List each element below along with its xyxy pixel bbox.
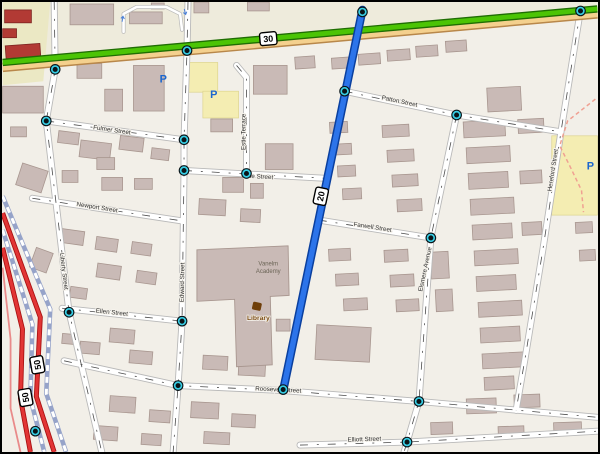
building [466, 146, 510, 164]
building [105, 89, 123, 111]
building [231, 414, 255, 428]
building [149, 410, 171, 423]
map-viewport[interactable]: Fulmer StreetErie StreetEstie TerracePat… [0, 0, 600, 454]
route-node[interactable] [50, 64, 61, 75]
building [343, 298, 367, 311]
building [79, 341, 100, 355]
route-node[interactable] [179, 165, 190, 176]
building [97, 158, 115, 170]
route-node[interactable] [575, 6, 586, 17]
route-node[interactable] [451, 110, 462, 121]
building [136, 270, 157, 285]
building [96, 263, 121, 280]
building-red [3, 29, 17, 38]
building [358, 53, 381, 65]
building [478, 300, 522, 317]
building [194, 2, 209, 13]
parking-lot [203, 91, 239, 118]
building [129, 350, 153, 365]
building [468, 171, 508, 189]
route-node[interactable] [278, 384, 289, 395]
route-node[interactable] [357, 7, 368, 18]
route-shield-20: 20 [313, 187, 329, 206]
building [435, 289, 453, 312]
route-shield-30: 30 [259, 32, 277, 46]
building [102, 177, 123, 190]
route-node[interactable] [30, 426, 41, 437]
route-node[interactable] [414, 396, 425, 407]
route-node[interactable] [402, 437, 413, 448]
route-node[interactable] [425, 233, 436, 244]
building [191, 402, 220, 419]
building [240, 209, 260, 223]
building [476, 275, 516, 292]
building [276, 319, 290, 331]
building [203, 355, 228, 370]
building [416, 45, 439, 57]
map-canvas[interactable]: Fulmer StreetErie StreetEstie TerracePat… [2, 2, 598, 452]
building [62, 171, 78, 183]
parking-icon: P [160, 73, 167, 85]
building [474, 249, 518, 266]
shield-number: 50 [20, 392, 32, 404]
building [134, 178, 152, 189]
building [199, 199, 227, 216]
building [392, 174, 418, 187]
building [335, 273, 358, 286]
shield-number: 50 [32, 359, 44, 371]
parking-icon: P [210, 89, 217, 101]
building [390, 274, 414, 287]
route-node[interactable] [177, 316, 188, 327]
building [387, 149, 414, 162]
building [77, 63, 102, 78]
building [204, 432, 230, 445]
building [337, 165, 355, 177]
building [387, 49, 411, 61]
building [342, 188, 361, 200]
building [480, 326, 520, 343]
building [211, 119, 233, 132]
parking-icon: P [587, 161, 594, 173]
building [484, 376, 514, 390]
building [253, 65, 287, 94]
building [131, 242, 152, 257]
building [295, 56, 316, 69]
building [11, 127, 27, 137]
school-label: VanelmAcademy [256, 262, 281, 275]
building [109, 328, 135, 344]
building-red [5, 10, 32, 23]
building [58, 131, 80, 145]
building [520, 170, 542, 184]
building [328, 248, 350, 261]
building [470, 197, 514, 215]
street-label: Estie Terrace [240, 113, 247, 150]
building [265, 144, 293, 170]
route-node[interactable] [64, 307, 75, 318]
building [223, 177, 244, 192]
building [472, 223, 512, 240]
building [396, 299, 419, 312]
building [109, 396, 136, 414]
building [70, 4, 114, 25]
building [247, 2, 269, 11]
shield-number: 30 [263, 33, 274, 44]
route-node[interactable] [182, 45, 193, 56]
building [487, 86, 522, 112]
library-label: Library [247, 315, 270, 322]
route-shield-50: 50 [30, 355, 46, 374]
route-node[interactable] [241, 168, 252, 179]
building [384, 249, 408, 262]
building [141, 433, 162, 445]
route-node[interactable] [173, 380, 184, 391]
building [431, 422, 453, 435]
building [133, 65, 164, 111]
building [522, 222, 542, 236]
route-node[interactable] [179, 134, 190, 145]
building [579, 249, 595, 261]
building [119, 135, 144, 152]
route-node[interactable] [41, 116, 52, 127]
building [397, 199, 422, 212]
building [151, 148, 170, 161]
building [250, 183, 263, 198]
street-label: Edward Street [179, 262, 187, 302]
building [315, 325, 371, 362]
building [482, 352, 526, 369]
route-shield-50: 50 [18, 388, 34, 407]
building [575, 222, 592, 234]
building [130, 12, 163, 24]
street-label: Elliott Street [347, 436, 381, 444]
route-node[interactable] [339, 86, 350, 97]
shield-number: 20 [315, 190, 327, 202]
building [382, 124, 409, 137]
building [69, 286, 87, 299]
building [3, 86, 44, 113]
building [95, 236, 118, 252]
building [445, 40, 467, 52]
